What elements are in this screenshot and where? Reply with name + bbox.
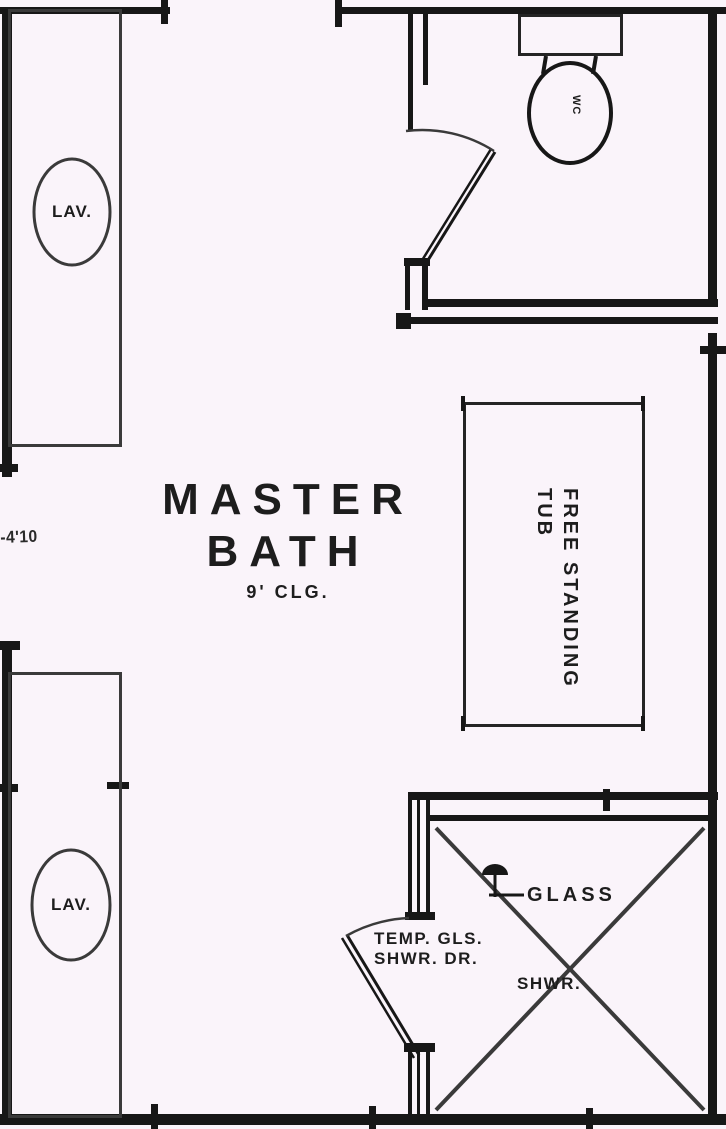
- shower-door-note-line2: SHWR. DR.: [374, 949, 483, 969]
- tick-bottom-wall-2: [369, 1106, 376, 1129]
- ceiling-height-note: 9' CLG.: [138, 582, 438, 603]
- tick-right-wall: [700, 346, 726, 354]
- tick-shower-top-wall: [603, 789, 610, 811]
- shower-left-wall-lower-3: [426, 1050, 430, 1117]
- wc-door-jamb-left: [405, 262, 410, 310]
- shower-left-wall-upper-3: [426, 792, 430, 917]
- lavatory-label-bottom: LAV.: [41, 895, 101, 915]
- shower-door-jamb-top-cap: [405, 912, 435, 920]
- tick-top-wall-right: [335, 0, 342, 27]
- tick-bottom-wall-3: [586, 1108, 593, 1129]
- glass-label: GLASS: [527, 884, 616, 907]
- toilet-seat-connector-right: [593, 56, 596, 74]
- toilet-seat-connector-left: [543, 56, 546, 74]
- tick-top-wall-left: [161, 0, 168, 24]
- wc-door-leaf-2: [421, 149, 491, 262]
- room-title-line2: BATH: [138, 526, 438, 578]
- wc-door-jamb-right: [422, 262, 428, 310]
- wc-door-hinge-cap: [404, 258, 430, 266]
- lavatory-label-top: LAV.: [42, 202, 102, 222]
- wall-right-lower: [708, 333, 717, 1118]
- toilet-tank-outline: [518, 14, 623, 56]
- shower-door-note: TEMP. GLS. SHWR. DR.: [374, 929, 483, 969]
- tub-corner-tick-br: [641, 716, 645, 731]
- shower-top-wall-outer: [408, 792, 718, 800]
- tick-left-wall-1: [0, 464, 18, 472]
- tick-left-wall-2: [0, 641, 20, 650]
- shower-left-wall-lower-2: [417, 1050, 420, 1117]
- wc-room-left-wall-outer: [408, 12, 413, 130]
- wc-door-swing-arc: [406, 130, 494, 151]
- tub-corner-tick-bl: [461, 716, 465, 731]
- master-bath-floor-plan: LAV. LAV. WC MASTER BATH 9' CLG. -4'10 F…: [0, 0, 726, 1129]
- wc-room-bottom-wall-outer: [398, 317, 718, 324]
- tub-label-line1: FREE STANDING: [557, 488, 583, 689]
- toilet-label: WC: [570, 95, 582, 115]
- tub-label-line2: TUB: [531, 488, 557, 689]
- tub-corner-tick-tl: [461, 396, 465, 411]
- wc-room-bottom-wall-inner: [428, 299, 718, 307]
- room-title-line1: MASTER: [138, 474, 438, 526]
- shower-label: SHWR.: [517, 974, 581, 994]
- shower-left-wall-upper-1: [408, 792, 412, 917]
- tick-bottom-wall-1: [151, 1104, 158, 1129]
- wall-top-right-segment: [337, 7, 726, 14]
- shower-top-wall-inner: [430, 815, 708, 821]
- shower-diagonal-2: [436, 828, 704, 1110]
- wc-room-left-wall-inner: [423, 12, 428, 85]
- tub-label: FREE STANDING TUB: [531, 488, 583, 689]
- room-title: MASTER BATH 9' CLG.: [138, 474, 438, 603]
- wc-door-leaf: [425, 152, 495, 265]
- shower-left-wall-upper-2: [417, 792, 420, 917]
- shower-diagonal-1: [436, 828, 704, 1110]
- glass-marker-icon: [482, 864, 508, 875]
- tub-corner-tick-tr: [641, 396, 645, 411]
- vanity-counter-top-left: [8, 9, 122, 447]
- wall-right-upper: [708, 12, 717, 302]
- wc-room-wall-end-cap: [396, 313, 411, 329]
- shower-left-wall-lower-1: [408, 1050, 412, 1117]
- shower-door-note-line1: TEMP. GLS.: [374, 929, 483, 949]
- left-opening-dimension: -4'10: [0, 527, 38, 548]
